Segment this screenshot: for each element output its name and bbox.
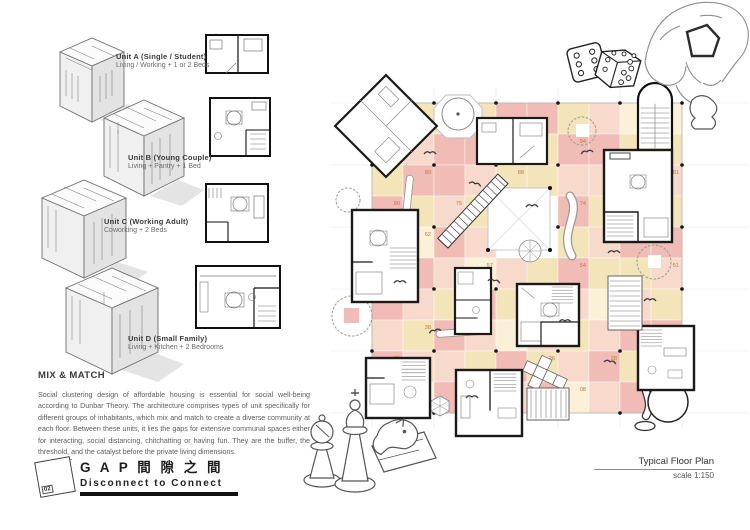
octagon-pavilion bbox=[434, 95, 482, 138]
room-top-center bbox=[477, 118, 547, 164]
axon-unit-c bbox=[42, 180, 148, 288]
svg-text:81: 81 bbox=[673, 170, 679, 176]
svg-text:51: 51 bbox=[673, 263, 679, 269]
mix-match-heading: MIX & MATCH bbox=[38, 370, 310, 381]
thumb-plan-d bbox=[196, 266, 280, 328]
svg-text:38: 38 bbox=[425, 325, 431, 331]
unit-c-label: Unit C (Working Adult) Coworking + 2 Bed… bbox=[104, 217, 188, 234]
plan-scale: scale 1:150 bbox=[594, 471, 714, 480]
thumb-plan-b bbox=[210, 98, 270, 156]
unit-d-label: Unit D (Small Family) Living + Kitchen +… bbox=[128, 334, 223, 351]
svg-text:80: 80 bbox=[425, 170, 431, 176]
mix-match-section: MIX & MATCH Social clustering design of … bbox=[38, 370, 310, 459]
axon-unit-d bbox=[66, 268, 184, 382]
svg-text:62: 62 bbox=[425, 232, 431, 238]
dice-icons bbox=[566, 42, 642, 94]
room-bottom-right bbox=[638, 326, 694, 390]
svg-text:88: 88 bbox=[518, 170, 524, 176]
thumb-plan-a bbox=[206, 35, 268, 73]
unit-b-desc: Living + Pantry + 1 Bed bbox=[128, 163, 212, 170]
unit-a-title: Unit A (Single / Student) bbox=[116, 52, 209, 61]
unit-c-desc: Coworking + 2 Beds bbox=[104, 227, 188, 234]
logo-block: G A P 間 隙 之 間 Disconnect to Connect bbox=[80, 456, 238, 496]
logo-underline-bar bbox=[80, 492, 238, 496]
svg-text:75: 75 bbox=[456, 201, 462, 207]
svg-text:08: 08 bbox=[580, 387, 586, 393]
svg-text:54: 54 bbox=[580, 263, 586, 269]
unit-d-title: Unit D (Small Family) bbox=[128, 334, 223, 343]
logo-badge-number: 02 bbox=[41, 485, 53, 495]
plan-caption-block: Typical Floor Plan scale 1:150 bbox=[594, 456, 714, 480]
stair-bottom bbox=[527, 388, 569, 420]
unit-a-desc: Living / Working + 1 or 2 Beds bbox=[116, 62, 209, 69]
room-right-top bbox=[604, 150, 672, 242]
room-left bbox=[352, 210, 418, 302]
logo-badge: 02 bbox=[34, 456, 76, 498]
caption-divider bbox=[594, 469, 712, 470]
room-bottom-center bbox=[456, 370, 522, 436]
room-center-left bbox=[455, 268, 491, 334]
presentation-board: { "units": [ {"title": "Unit A (Single /… bbox=[0, 0, 750, 530]
unit-d-desc: Living + Kitchen + 2 Bedrooms bbox=[128, 344, 223, 351]
thumb-plan-c bbox=[206, 184, 268, 242]
svg-text:74: 74 bbox=[580, 201, 586, 207]
unit-a-label: Unit A (Single / Student) Living / Worki… bbox=[116, 52, 209, 69]
plan-caption: Typical Floor Plan bbox=[594, 456, 714, 467]
unit-b-label: Unit B (Young Couple) Living + Pantry + … bbox=[128, 153, 212, 170]
mix-match-body: Social clustering design of affordable h… bbox=[38, 390, 310, 459]
arch-stair-tower bbox=[638, 83, 672, 148]
svg-text:90: 90 bbox=[394, 201, 400, 207]
logo-subtitle: Disconnect to Connect bbox=[80, 478, 238, 489]
logo-title: G A P 間 隙 之 間 bbox=[80, 456, 238, 476]
room-center bbox=[517, 284, 579, 346]
open-stair-right bbox=[608, 276, 642, 330]
unit-b-title: Unit B (Young Couple) bbox=[128, 153, 212, 162]
svg-text:94: 94 bbox=[580, 139, 586, 145]
unit-c-title: Unit C (Working Adult) bbox=[104, 217, 188, 226]
room-bottom-left bbox=[366, 358, 430, 418]
